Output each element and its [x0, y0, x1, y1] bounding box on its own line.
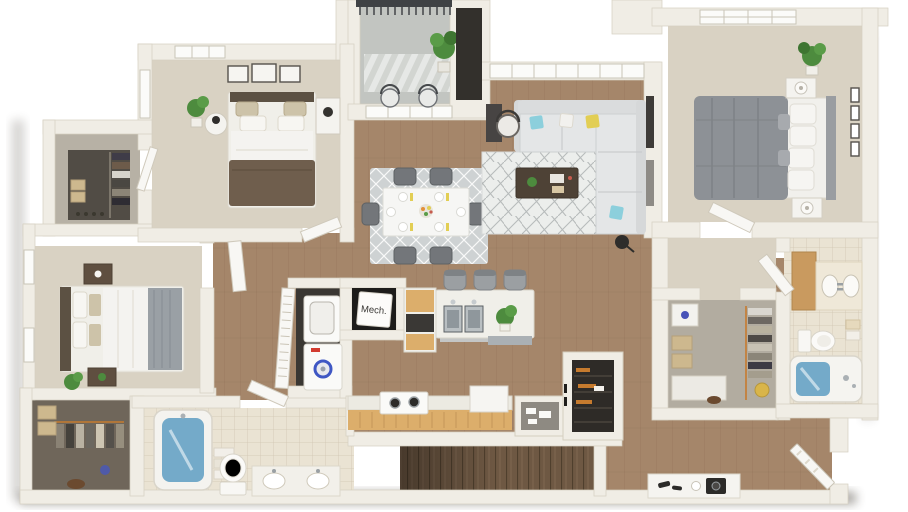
washer-logo: [311, 348, 320, 352]
burner: [409, 397, 419, 407]
bistro-chair: [381, 85, 399, 107]
living-room: [482, 96, 654, 252]
faucet: [451, 300, 456, 305]
centerpiece: [419, 204, 433, 218]
storage-box: [672, 354, 692, 368]
nightstand-bottom: [88, 368, 116, 386]
bowl: [692, 482, 701, 491]
laundry-basket: [100, 465, 110, 475]
toilet: [798, 330, 835, 352]
dryer: [304, 296, 340, 342]
mechanical-closet: Mech.: [352, 288, 396, 330]
washer: [304, 344, 342, 390]
toilet: [220, 454, 246, 495]
tall-cabinet: [404, 288, 436, 352]
headboard: [60, 287, 71, 371]
books: [550, 174, 564, 183]
pillow: [73, 322, 87, 348]
table-plant: [527, 177, 537, 187]
decor: [95, 271, 102, 278]
door-handle: [564, 397, 567, 406]
sink: [822, 275, 838, 297]
sheet: [103, 288, 148, 370]
accent-pillow: [236, 102, 258, 116]
tub-faucet: [181, 414, 186, 419]
wall-art-frames: [228, 64, 300, 82]
blue-bag: [681, 311, 689, 319]
dish-cabinet: [515, 396, 565, 436]
headboard: [826, 96, 836, 200]
pillow: [240, 116, 266, 131]
bed: [60, 286, 184, 372]
bath-water: [162, 418, 204, 482]
sink: [263, 473, 285, 489]
camera: [706, 478, 726, 494]
accent-pillow: [89, 324, 101, 346]
dining-area: [362, 168, 488, 264]
accent-pillow: [778, 114, 790, 130]
balcony-storage-interior: [456, 8, 482, 100]
balcony-railing: [356, 0, 452, 7]
kitchen-island: [436, 290, 534, 345]
storage-box: [38, 406, 56, 419]
shoes: [707, 396, 721, 404]
door-handle: [564, 384, 567, 393]
refrigerator: [470, 386, 508, 412]
pillow: [788, 170, 814, 190]
balcony-french-door: [366, 106, 452, 118]
nightstand-right: [316, 98, 340, 134]
storage-box: [672, 336, 692, 350]
nightstand-top: [84, 264, 112, 284]
range-stove: [380, 392, 428, 414]
bathtub: [790, 356, 862, 402]
vanity-cabinet: [792, 252, 816, 310]
nightstand-top: [786, 78, 816, 98]
throw-pillow-white: [559, 113, 573, 127]
bed: [228, 92, 316, 208]
shoe-bench: [672, 376, 726, 400]
duvet: [694, 96, 788, 200]
faucet: [837, 288, 843, 291]
coffee-table: [516, 168, 578, 198]
double-vanity: [252, 466, 340, 496]
hanging-clothes: [56, 424, 124, 448]
faucet: [316, 469, 320, 473]
floor-plan-canvas: Mech.: [0, 0, 908, 512]
storage-box: [71, 192, 85, 202]
walk-in-closet-2: [68, 150, 130, 220]
pillow: [73, 292, 87, 318]
bar-stools: [444, 270, 526, 290]
nightstand-bottom: [792, 198, 822, 218]
balcony-rug-stripes: [364, 54, 450, 92]
bathtub: [154, 410, 212, 490]
throw-pillow-blue: [609, 205, 624, 220]
bed: [694, 96, 836, 200]
throw-pillow-yellow: [585, 114, 599, 128]
table-lamp: [323, 107, 333, 117]
round-mirror: [755, 383, 769, 397]
headboard: [230, 92, 314, 102]
throw-pillow-blue: [529, 115, 544, 130]
stair-shading: [400, 446, 594, 496]
living-room-window: [490, 64, 644, 78]
dresser: [672, 304, 698, 326]
accent-pillow: [284, 102, 306, 116]
master-bedroom-window: [700, 10, 796, 24]
blanket: [148, 288, 182, 370]
burner: [390, 398, 400, 408]
pantry: [563, 352, 623, 440]
small-plant: [98, 373, 106, 381]
built-in-oven: [406, 314, 434, 332]
table-lamp: [212, 116, 220, 124]
pillow: [278, 116, 304, 131]
dishwasher: [488, 336, 532, 345]
bistro-chair: [419, 85, 437, 107]
shoes: [67, 479, 85, 489]
mech-label: Mech.: [361, 304, 388, 317]
pillow: [790, 104, 816, 124]
pillow: [790, 126, 816, 146]
blanket: [229, 160, 315, 206]
storage-box: [71, 180, 85, 190]
floor-plan-render: Mech.: [0, 0, 908, 512]
bath-water: [796, 362, 830, 396]
nightstand-left: [205, 113, 227, 135]
wall-art: [646, 160, 654, 206]
sink: [843, 275, 859, 297]
console-table: [648, 474, 740, 498]
sink: [307, 473, 329, 489]
faucet: [837, 283, 843, 286]
accent-pillow: [778, 150, 790, 166]
sheet: [231, 131, 313, 165]
accent-pillow: [89, 294, 101, 316]
cabinet-faces: [348, 410, 512, 430]
wall-mirror: [646, 96, 654, 148]
faucet: [472, 300, 477, 305]
stairs: [400, 446, 594, 496]
tub-faucet: [843, 375, 849, 381]
pillow: [788, 148, 814, 168]
laundry-closet: [275, 288, 342, 390]
faucet: [272, 469, 276, 473]
storage-box: [38, 422, 56, 435]
